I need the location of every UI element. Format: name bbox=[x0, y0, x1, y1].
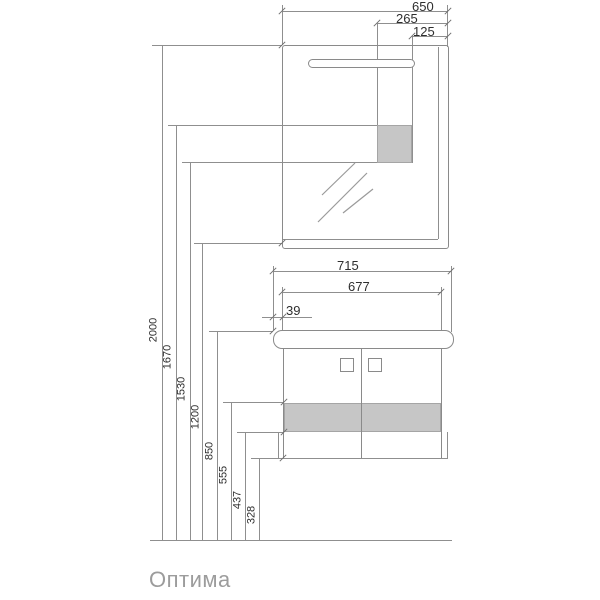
dim-line-715 bbox=[273, 271, 451, 272]
vanity-shaded-band bbox=[284, 403, 441, 432]
dim-label-125: 125 bbox=[413, 25, 435, 38]
height-dim-label-850: 850 bbox=[205, 442, 216, 460]
dim-label-715: 715 bbox=[337, 259, 359, 272]
height-ref-line-1200 bbox=[194, 243, 282, 244]
height-dim-label-1670: 1670 bbox=[163, 345, 174, 369]
height-ref-line-850 bbox=[209, 331, 273, 332]
vanity-base-right bbox=[447, 432, 448, 458]
extension-line bbox=[451, 266, 452, 332]
height-dim-label-555: 555 bbox=[219, 466, 230, 484]
height-dim-label-328: 328 bbox=[247, 506, 258, 524]
dim-tick bbox=[444, 19, 451, 26]
height-dim-label-2000: 2000 bbox=[149, 318, 160, 342]
vanity-left-handle bbox=[340, 358, 354, 372]
vanity-door-divider bbox=[361, 348, 362, 458]
floor-line bbox=[150, 540, 452, 541]
height-ref-line-2000 bbox=[152, 45, 282, 46]
height-dim-line-328 bbox=[259, 458, 260, 540]
extension-line bbox=[273, 266, 274, 330]
height-dim-label-1530: 1530 bbox=[177, 377, 188, 401]
extension-line bbox=[441, 287, 442, 332]
vanity-base-bottom bbox=[278, 458, 448, 459]
dim-tick bbox=[444, 32, 451, 39]
height-dim-line-555 bbox=[231, 402, 232, 540]
mirror-light-fixture bbox=[308, 59, 415, 68]
mirror-cabinet-inner-bottom bbox=[283, 239, 438, 240]
dim-label-677: 677 bbox=[348, 280, 370, 293]
mirror-cabinet-shaded-block bbox=[377, 125, 412, 163]
vanity-base-left bbox=[278, 432, 279, 458]
height-dim-line-1200 bbox=[202, 243, 203, 540]
dim-label-39: 39 bbox=[286, 304, 300, 317]
height-dim-line-1530 bbox=[190, 162, 191, 540]
technical-drawing-canvas: 650 265 125 2000 1670 1530 1200 850 555 … bbox=[0, 0, 600, 600]
height-dim-line-850 bbox=[217, 331, 218, 540]
mirror-hatch-lines bbox=[310, 155, 380, 230]
height-ref-line-437 bbox=[237, 432, 284, 433]
dim-tick bbox=[444, 7, 451, 14]
height-dim-label-1200: 1200 bbox=[191, 405, 202, 429]
height-ref-line-1670 bbox=[168, 125, 412, 126]
height-dim-line-2000 bbox=[162, 45, 163, 540]
vanity-countertop bbox=[273, 330, 454, 349]
mirror-cabinet-inner-right bbox=[438, 47, 439, 239]
height-dim-label-437: 437 bbox=[233, 491, 244, 509]
vanity-right-handle bbox=[368, 358, 382, 372]
product-title: Оптима bbox=[149, 567, 231, 593]
extension-line bbox=[282, 287, 283, 330]
height-ref-line-555 bbox=[223, 402, 284, 403]
height-dim-line-1670 bbox=[176, 125, 177, 540]
